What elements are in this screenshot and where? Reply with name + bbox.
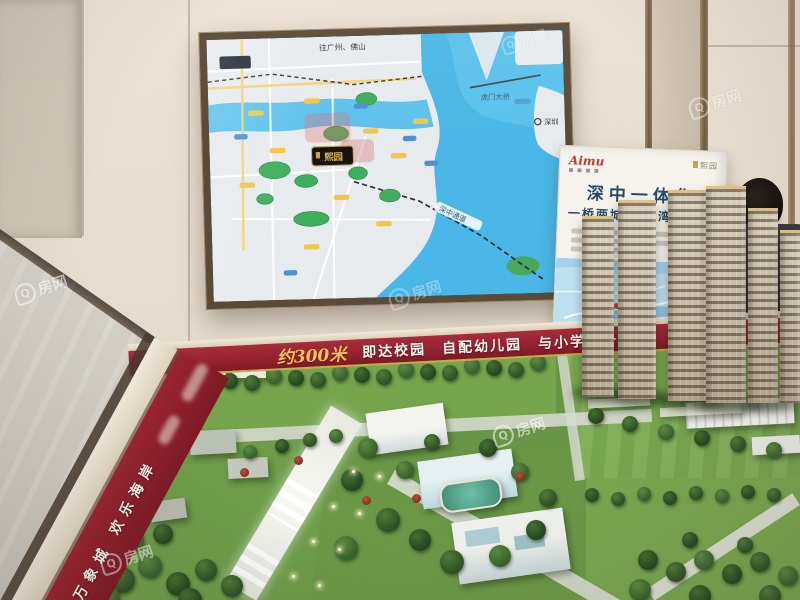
- model-tree: [588, 408, 604, 424]
- model-tree: [275, 439, 289, 453]
- model-red-shrub: [294, 456, 303, 465]
- street-lamp: [378, 475, 381, 478]
- wall-seam: [82, 0, 84, 236]
- model-tree: [750, 552, 770, 572]
- model-tree: [689, 486, 703, 500]
- residential-tower: [748, 208, 778, 403]
- residential-tower: [706, 186, 746, 403]
- watermark-q-icon: Q: [386, 285, 412, 311]
- model-tree: [759, 585, 781, 600]
- model-red-shrub: [240, 468, 249, 477]
- model-tree: [396, 461, 414, 479]
- model-tree: [741, 485, 755, 499]
- sports-court: [228, 457, 269, 479]
- street-lamp: [318, 584, 321, 587]
- model-tree: [243, 445, 257, 459]
- map-label-destination: 往广州、佛山: [319, 41, 366, 52]
- blurred-text: [156, 413, 182, 446]
- project-logo: 熙园: [693, 160, 718, 172]
- model-tree: [409, 529, 431, 551]
- model-tree: [489, 545, 511, 567]
- model-tree: [663, 491, 677, 505]
- model-tree: [658, 424, 674, 440]
- wall-seam: [700, 45, 800, 47]
- fascia-phrase: 自配幼儿园: [442, 334, 523, 358]
- model-tree: [730, 436, 746, 452]
- model-red-shrub: [362, 496, 371, 505]
- model-tree: [629, 579, 651, 600]
- model-tree: [420, 364, 436, 380]
- model-tree: [358, 438, 378, 458]
- model-tree: [585, 488, 599, 502]
- model-tree: [354, 367, 370, 383]
- model-tree: [666, 562, 686, 582]
- model-tree: [637, 487, 651, 501]
- street-lamp: [292, 575, 295, 578]
- residential-tower: [780, 230, 800, 403]
- developer-logo: Aimu■ ■ ■ ■: [569, 153, 605, 174]
- model-tree: [303, 433, 317, 447]
- wall-seam: [188, 0, 190, 352]
- model-tree: [526, 520, 546, 540]
- model-tree: [195, 559, 217, 581]
- model-tree: [376, 369, 392, 385]
- wall-corner-panel: [0, 0, 82, 238]
- residential-tower: [668, 190, 710, 401]
- fascia-phrase: 即达校园: [362, 338, 427, 361]
- model-tree: [153, 524, 173, 544]
- led-map-screen: 虎门大桥 往广州、佛山 深圳 深中通道 熙园: [199, 23, 577, 309]
- model-tree: [737, 537, 753, 553]
- street-lamp: [312, 540, 315, 543]
- fascia-distance: 约300米: [276, 340, 347, 368]
- blurred-text: [180, 362, 210, 404]
- model-tree: [221, 575, 243, 597]
- roof-detail: [465, 527, 501, 548]
- model-tree: [440, 550, 464, 574]
- street-lamp: [338, 548, 341, 551]
- street-lamp: [358, 512, 361, 515]
- model-tree: [778, 566, 798, 586]
- model-tree: [694, 430, 710, 446]
- street-lamp: [332, 505, 335, 508]
- model-tree: [694, 550, 714, 570]
- city-map: 虎门大桥 往广州、佛山 深圳 深中通道 熙园: [206, 30, 569, 302]
- residential-tower: [582, 216, 614, 397]
- map-project-marker: 熙园: [311, 146, 353, 166]
- model-tree: [329, 429, 343, 443]
- model-tree: [689, 585, 711, 600]
- map-label-city: 深圳: [544, 117, 559, 126]
- model-tree: [722, 564, 742, 584]
- model-tree: [424, 434, 440, 450]
- sales-center-photo: 虎门大桥 往广州、佛山 深圳 深中通道 熙园 Aimu■ ■ ■ ■ 熙园: [0, 0, 800, 600]
- model-tree: [682, 532, 698, 548]
- model-tree: [766, 442, 782, 458]
- model-tree: [611, 492, 625, 506]
- map-label-bridge: 虎门大桥: [481, 92, 511, 102]
- model-red-shrub: [412, 494, 421, 503]
- model-tree: [638, 550, 658, 570]
- model-tree: [622, 416, 638, 432]
- model-tree: [310, 372, 326, 388]
- model-tree: [376, 508, 400, 532]
- residential-tower: [618, 200, 656, 399]
- map-project-name: 熙园: [324, 152, 343, 164]
- street-lamp: [352, 470, 355, 473]
- model-tree: [539, 489, 557, 507]
- model-red-shrub: [516, 472, 525, 481]
